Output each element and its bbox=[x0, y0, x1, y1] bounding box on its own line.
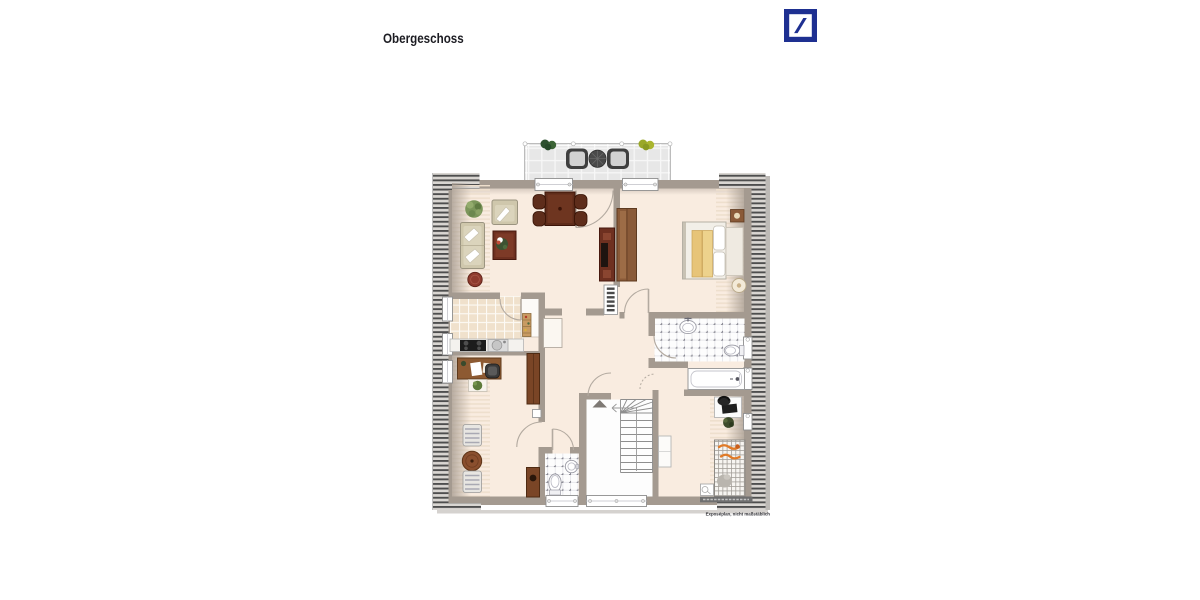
svg-text:Exposéplan, nicht maßstäblich: Exposéplan, nicht maßstäblich bbox=[706, 512, 771, 517]
